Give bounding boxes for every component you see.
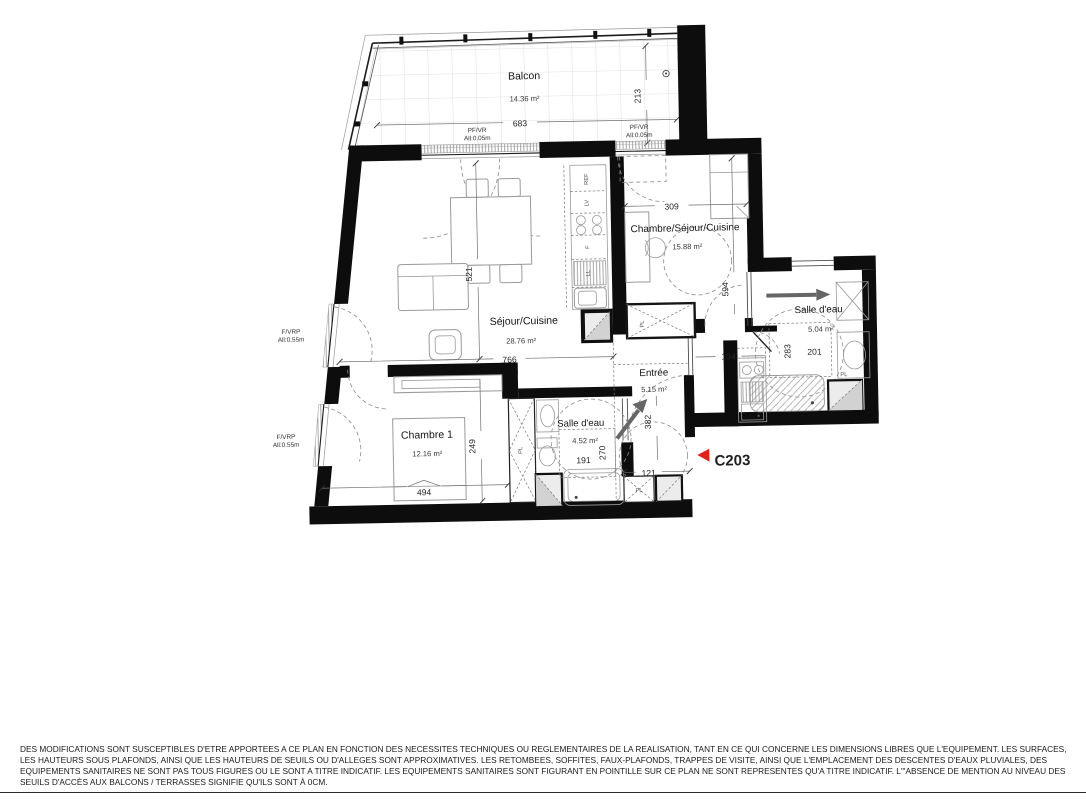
svg-text:PF/VR: PF/VR xyxy=(468,127,487,134)
room-name-sejour: Séjour/Cuisine xyxy=(490,315,559,328)
bathroom-1: Salle d'eau 4.52 m² 191 270 xyxy=(534,398,624,506)
window-label-fvrp-upper: F/VRP All:0.55m xyxy=(278,329,305,345)
dim-studio-width: 309 xyxy=(664,201,679,211)
technical-shaft-kitchen xyxy=(584,312,611,340)
living-room: Séjour/Cuisine 28.76 m² xyxy=(396,178,559,361)
entrance-door-leaf xyxy=(684,375,695,437)
floor-plan-drawing: Balcon 14.36 m² 683 213 PF/VR All:0.05m … xyxy=(0,0,1086,740)
dim-sde1-height: 270 xyxy=(597,445,607,460)
dim-balcon-width: 683 xyxy=(513,118,528,128)
washer-label: LL xyxy=(586,269,592,276)
technical-shaft-entry xyxy=(656,475,682,501)
svg-text:PL: PL xyxy=(518,446,524,454)
room-name-sde1: Salle d'eau xyxy=(557,418,604,430)
disclaimer-text: DES MODIFICATIONS SONT SUSCEPTIBLES D'ET… xyxy=(20,744,1068,788)
room-name-entree: Entrée xyxy=(639,368,669,380)
wardrobe xyxy=(394,375,502,393)
room-area-balcon: 14.36 m² xyxy=(509,94,540,104)
entry-hall: Entrée 5.15 m² 382 121 PL xyxy=(613,337,693,502)
svg-text:PL: PL xyxy=(840,372,848,378)
svg-text:All:0.05m: All:0.05m xyxy=(464,135,491,143)
dim-sde1-width: 191 xyxy=(576,455,591,465)
dim-sde2-left: 194 xyxy=(721,351,736,361)
room-name-chambre1: Chambre 1 xyxy=(401,429,453,442)
room-name-studio: Chambre/Séjour/Cuisine xyxy=(630,222,740,235)
room-name-balcon: Balcon xyxy=(508,70,540,83)
kitchen-block: REF LV F LL xyxy=(564,165,610,341)
bed-studio xyxy=(710,154,749,219)
page-bottom-rule xyxy=(0,792,1086,793)
window-pfvr-left xyxy=(421,143,539,159)
dim-sde2-width: 201 xyxy=(807,347,822,357)
svg-text:PL: PL xyxy=(635,488,643,494)
svg-text:PF/VR: PF/VR xyxy=(630,124,649,131)
dim-chambre1-height: 249 xyxy=(467,439,477,454)
studio-room: Chambre/Séjour/Cuisine 15.88 m² 309 594 xyxy=(620,154,752,316)
window-pfvr-right xyxy=(615,141,665,155)
svg-text:F/VRP: F/VRP xyxy=(276,434,295,441)
dim-chambre1-width: 494 xyxy=(417,487,432,497)
window-label-fvrp-lower: F/VRP All:0.55m xyxy=(273,434,300,450)
window-fvrp-lower xyxy=(312,403,361,466)
room-area-sde2: 5.04 m² xyxy=(808,324,834,334)
room-area-entree: 5.15 m² xyxy=(641,385,667,395)
svg-text:All:0.55m: All:0.55m xyxy=(278,337,305,345)
dim-balcon-height: 213 xyxy=(632,89,642,104)
svg-text:All:0.05m: All:0.05m xyxy=(626,132,653,140)
room-area-sejour: 28.76 m² xyxy=(506,336,537,346)
dim-entree-height: 382 xyxy=(643,414,653,429)
room-area-sde1: 4.52 m² xyxy=(572,436,598,446)
svg-text:F/VRP: F/VRP xyxy=(281,329,300,336)
fridge-label: REF xyxy=(584,173,590,185)
room-name-sde2: Salle d'eau xyxy=(794,304,842,316)
studio-wardrobe xyxy=(620,156,666,183)
closet-label: PL xyxy=(640,320,646,328)
armchair xyxy=(429,330,462,361)
balcony: Balcon 14.36 m² 683 213 PF/VR All:0.05m … xyxy=(339,27,681,152)
hall-closet: PL xyxy=(626,303,695,338)
entry-closet: PL xyxy=(624,476,654,503)
unit-marker: C203 xyxy=(697,448,750,470)
unit-arrow-icon xyxy=(697,449,709,462)
dim-sejour-height: 521 xyxy=(464,267,474,282)
shower-1 xyxy=(564,468,625,505)
bathroom-2: PL Salle d'eau 5.04 m² 283 201 194 xyxy=(694,282,870,413)
technical-shaft-bath1 xyxy=(536,474,563,506)
sofa xyxy=(398,263,469,310)
dim-studio-height: 594 xyxy=(720,282,730,297)
wc-1-tank xyxy=(537,438,557,448)
wc-1 xyxy=(539,446,555,466)
unit-code: C203 xyxy=(714,452,750,470)
floor-plan-page: Balcon 14.36 m² 683 213 PF/VR All:0.05m … xyxy=(0,0,1086,800)
dim-sejour-width: 766 xyxy=(502,354,517,364)
oven-label: F xyxy=(585,245,591,249)
svg-text:All:0.55m: All:0.55m xyxy=(273,442,300,450)
room-area-chambre1: 12.16 m² xyxy=(412,449,443,459)
window-fvrp-upper xyxy=(322,303,373,367)
bedroom-closet: PL xyxy=(508,398,536,502)
room-area-studio: 15.88 m² xyxy=(672,242,703,252)
dim-sde2-height: 283 xyxy=(782,344,792,359)
desk xyxy=(625,212,650,282)
dishwasher-label: LV xyxy=(584,200,590,207)
